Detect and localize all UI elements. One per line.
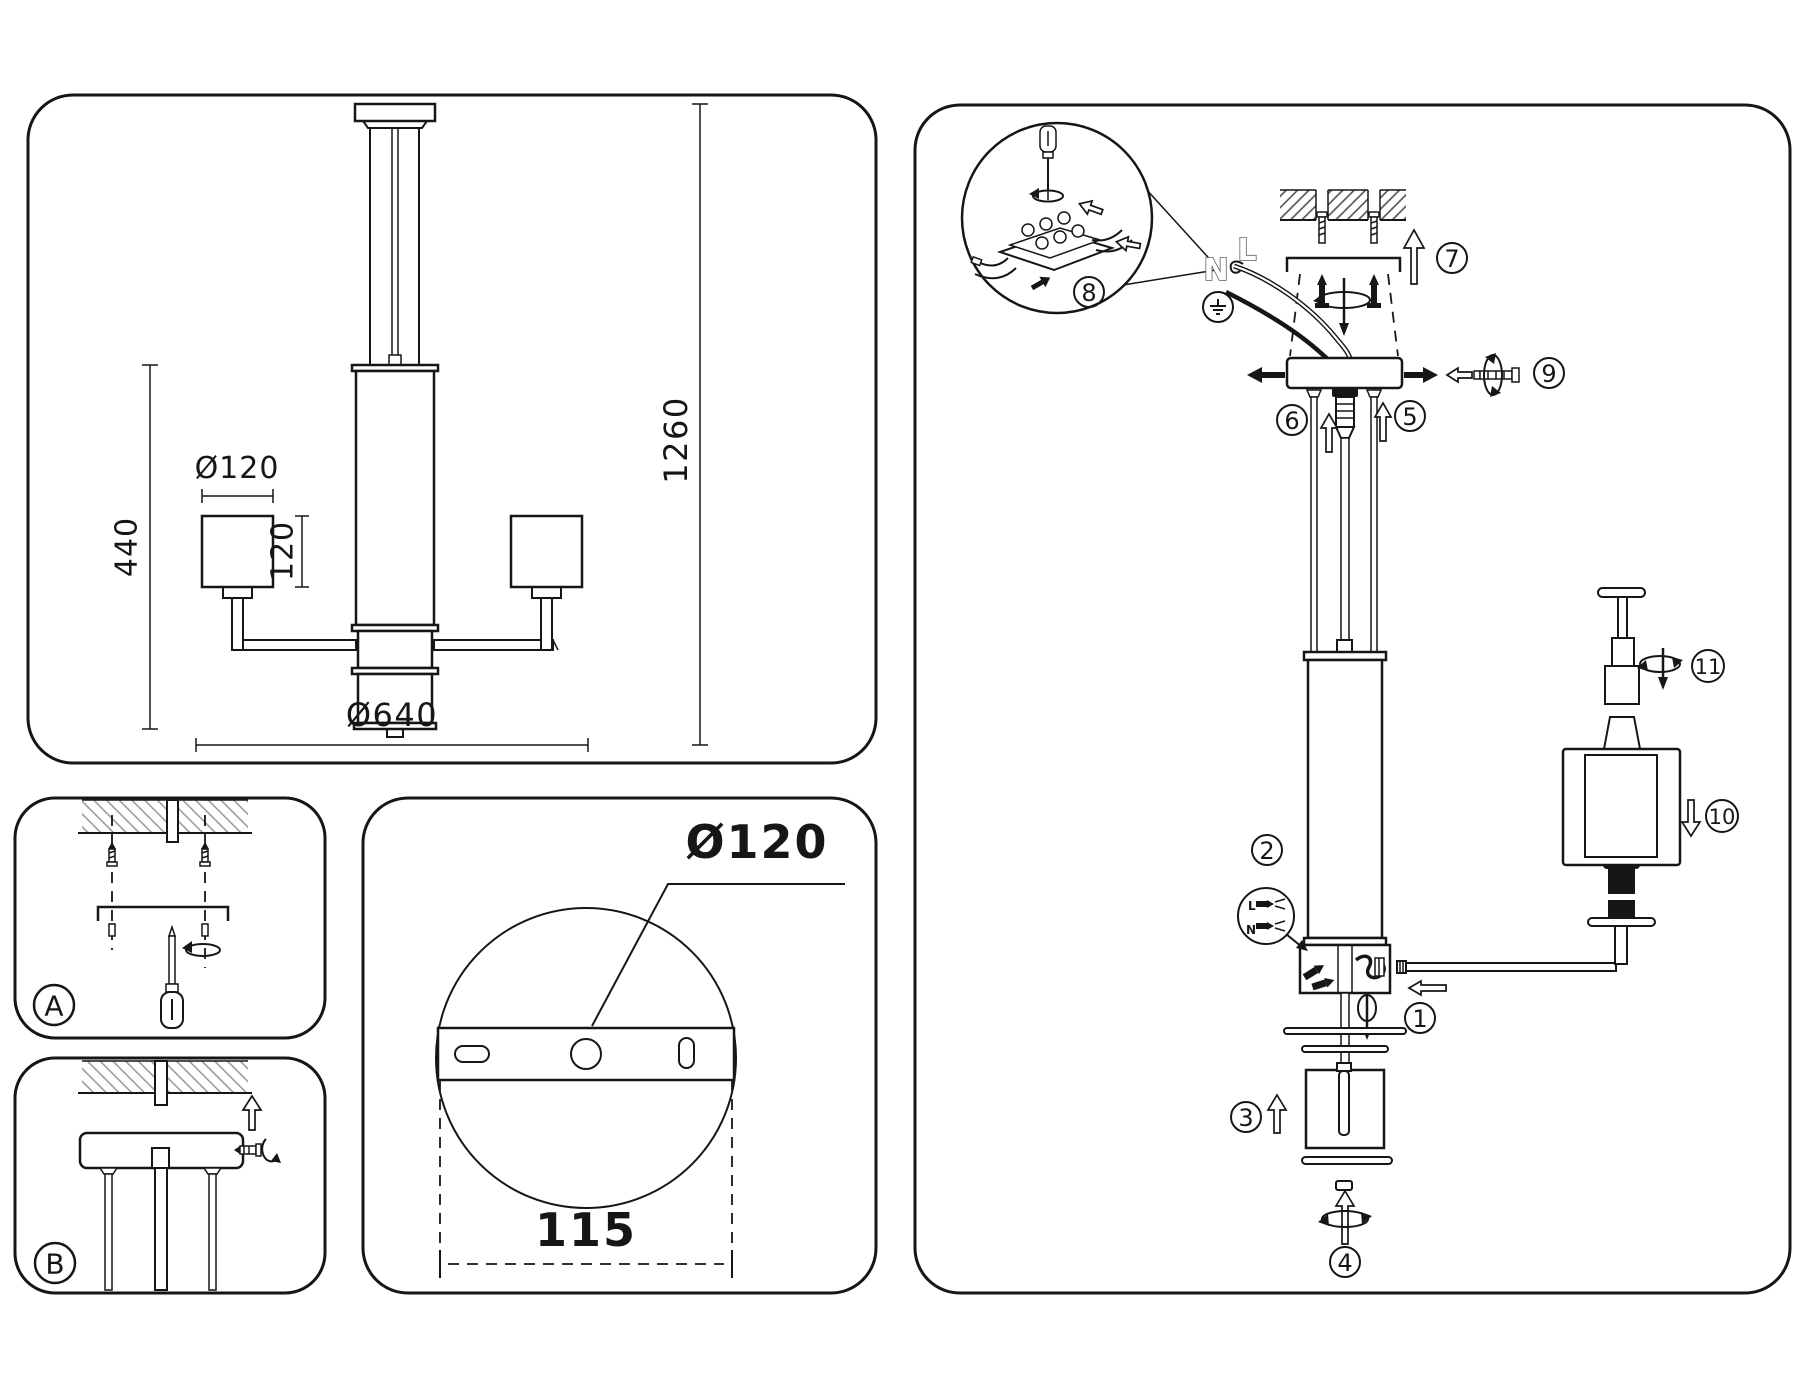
ceiling-pipe (155, 1061, 167, 1105)
shade-height-label: 120 (266, 521, 301, 581)
step-badge-11: 11 (1692, 650, 1724, 682)
plate-pitch-label: 115 (535, 1203, 637, 1257)
step-5-label: 5 (1402, 403, 1417, 431)
step-2-label: 2 (1259, 837, 1274, 865)
step-1-label: 1 (1412, 1005, 1427, 1033)
step-badge-10: 10 (1706, 800, 1738, 832)
ceiling-hatch (82, 800, 248, 833)
step-3-label: 3 (1238, 1104, 1253, 1132)
detail-live-label: L (1248, 899, 1256, 913)
pole (1308, 660, 1382, 938)
neutral-wire-label: N (1203, 253, 1228, 288)
step-4-label: 4 (1337, 1249, 1352, 1277)
ceiling-pipe (167, 800, 178, 842)
instruction-sheet: Ø120 120 440 1260 Ø640 (0, 0, 1800, 1400)
step-11-label: 11 (1695, 655, 1722, 679)
step-a-panel: A (15, 798, 325, 1038)
arm (1406, 963, 1616, 971)
assembly-panel: 8 L N (915, 105, 1790, 1293)
screw-icon (1317, 212, 1327, 243)
step-a-label: A (44, 990, 63, 1023)
shade-diameter-label: Ø120 (195, 451, 280, 486)
total-width-label: Ø640 (346, 696, 438, 734)
detail-neutral-label: N (1246, 923, 1256, 937)
step-6-label: 6 (1284, 407, 1299, 435)
step-b-badge: B (35, 1243, 75, 1283)
plate-diameter-label: Ø120 (685, 815, 828, 869)
screw-icon (1369, 212, 1379, 243)
section-height-label: 440 (110, 517, 145, 577)
mount-bar (438, 1028, 734, 1080)
mount-plate-panel: Ø120 115 (363, 798, 876, 1293)
step-b-panel: B (15, 1058, 325, 1293)
canopy (1287, 358, 1402, 388)
step-9-label: 9 (1541, 360, 1556, 388)
step-a-badge: A (34, 985, 74, 1025)
diagram-canvas: Ø120 120 440 1260 Ø640 (0, 0, 1800, 1400)
step-7-label: 7 (1444, 245, 1459, 273)
step-10-label: 10 (1709, 805, 1736, 829)
step-b-label: B (45, 1248, 64, 1281)
step-8-label: 8 (1081, 279, 1096, 307)
overview-panel: Ø120 120 440 1260 Ø640 (28, 95, 876, 763)
dimension-shade-height: 120 (266, 516, 310, 587)
inner-diffuser (1585, 755, 1657, 857)
total-height-label: 1260 (657, 396, 695, 483)
finial (1336, 1181, 1352, 1190)
